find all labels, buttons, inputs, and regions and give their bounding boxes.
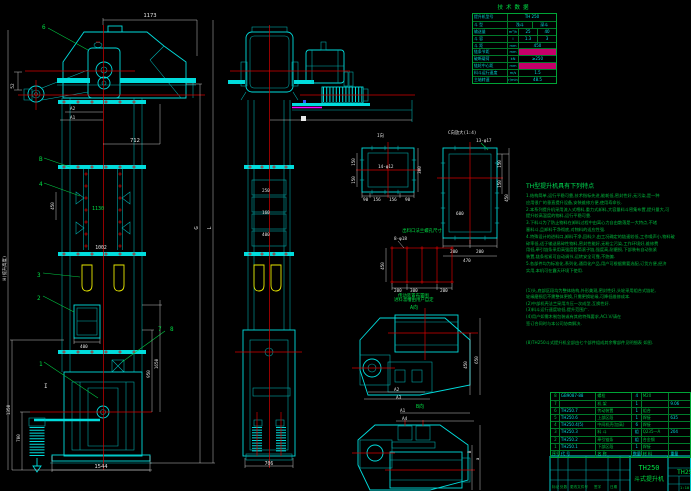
features-title: TH型提升机具有下列特点	[526, 181, 691, 190]
bom-material: M20	[641, 393, 669, 400]
dim-pulley: 52	[10, 83, 16, 89]
dim-casing-inner: 1002	[95, 245, 107, 251]
bom-weight	[668, 408, 690, 414]
bom-header-row: 序号代 号名 称数量材 料重量	[551, 450, 690, 457]
bom-row: 1TH250.1下部区段1焊接	[551, 443, 690, 450]
detail-flange-c	[437, 142, 509, 256]
tech-row-unit: l	[507, 36, 518, 42]
bom-code: TH250.3	[559, 429, 595, 435]
view-label-a1: A向	[410, 304, 418, 311]
dim-fc-b1: 200	[450, 249, 458, 255]
features-text-block: TH型提升机具有下列特点 1.结构简单,运行平稳可靠,技术指标先进,能耗低,密封…	[526, 181, 691, 391]
dim-dv2-a: a	[476, 457, 481, 460]
bom-row: 2TH250.2牵引链条组合金钢	[551, 436, 690, 443]
dim-fc-r3: 450	[504, 194, 510, 202]
tech-row-label: 输送量	[473, 29, 507, 35]
tech-row-label: 提升机型号	[473, 14, 507, 21]
balloon-6: 6	[42, 24, 46, 31]
bom-no: 2	[551, 437, 559, 443]
centerlines-front	[18, 25, 205, 470]
tech-row-value: 1.3	[518, 36, 537, 42]
bom-qty: 1	[631, 401, 641, 407]
parts-list-table: 8GB9087-88螺栓4M20 7机 架19.06 6TH250.7传动装置1…	[550, 392, 691, 458]
bom-header-material: 材 料	[641, 451, 669, 457]
bom-weight	[668, 444, 690, 450]
bom-weight	[668, 437, 690, 443]
features-body: 1.结构简单,运行平稳可靠,技术指标先进,能耗低,密封性好,无污染,是一种 应用…	[526, 193, 691, 275]
dim-len-g: G	[194, 226, 200, 229]
dim-dv1-r2: 650	[474, 356, 480, 364]
dim-a1: A1	[70, 115, 76, 121]
dim-len-l: L	[207, 226, 213, 230]
dim-base-width: 1544	[94, 464, 108, 470]
dim-link1: 250	[262, 188, 270, 194]
bom-row: 6TH250.7传动装置1组合	[551, 407, 690, 414]
dim-fi-b3: 156	[389, 197, 397, 203]
view-label-i: I向	[377, 132, 384, 139]
tech-row-unit: mm	[507, 49, 518, 55]
balloon-2: 2	[37, 295, 41, 302]
dim-fi-b4: 90	[405, 197, 411, 203]
tech-row-value: 48.5	[518, 77, 556, 83]
tech-row-label: 斗 型	[473, 22, 507, 28]
bom-row: 4TH250.4(5)中间机壳(加高)6焊接	[551, 421, 690, 428]
bom-name: 上部区段	[595, 415, 630, 421]
bom-name: 中间机壳(加高)	[595, 422, 630, 428]
bom-qty: 6	[631, 422, 641, 428]
bom-weight	[668, 393, 690, 400]
tech-row-value-redacted	[518, 63, 556, 69]
dim-dv1-a2: A2	[394, 387, 400, 393]
bolt-grid-title: 出料口法兰螺孔尺寸	[402, 227, 442, 234]
tech-row-label: 料斗运行速度	[473, 70, 507, 76]
dim-fi-b2: 156	[373, 197, 381, 203]
tech-row-unit: m³/h	[507, 29, 518, 35]
tech-table-title: 技术数据	[472, 4, 557, 13]
tech-row-label: 斗 容	[473, 36, 507, 42]
tech-row-unit: m/s	[507, 70, 518, 76]
dim-dv1-a3: A3	[396, 395, 402, 401]
dim-lines-front	[8, 18, 215, 472]
bom-no: 7	[551, 401, 559, 407]
tech-row-label: 链轮中心距	[473, 63, 507, 69]
bom-material: 焊接	[641, 444, 669, 450]
bom-qty: 1	[631, 408, 641, 414]
balloon-3: 3	[37, 272, 41, 279]
drive-top-view-2	[352, 413, 480, 490]
bom-code: TH250.7	[559, 408, 595, 414]
tech-row-label: 斗 距	[473, 43, 507, 49]
tech-row-value: 深斗	[532, 22, 557, 28]
dim-dv2-a4: A4	[402, 416, 408, 422]
balloon-leaders	[43, 28, 165, 398]
dim-fc-r2: 150	[497, 180, 503, 188]
bom-material: 合金钢	[641, 437, 669, 443]
bom-no: 8	[551, 393, 559, 400]
rev-doc: 更改文件号	[570, 484, 588, 489]
dim-link2: 160	[262, 210, 270, 216]
bom-code: TH250.6	[559, 415, 595, 421]
dim-a2: A2	[70, 106, 76, 112]
bom-material: Q235—A	[641, 429, 669, 435]
balloon-b: B	[39, 156, 43, 163]
bom-row: 8GB9087-88螺栓4M20	[551, 393, 690, 400]
flange-c-holes: 13-φ17	[476, 138, 492, 144]
balloon-8: 8	[170, 326, 174, 333]
bom-no: 4	[551, 422, 559, 428]
dim-fi-right: 300	[417, 166, 423, 174]
bom-weight	[668, 422, 690, 428]
bom-name: 下部区段	[595, 444, 630, 450]
bom-weight: 204	[668, 429, 690, 435]
bom-qty: 组	[631, 429, 641, 435]
dim-top-width: 1173	[143, 13, 156, 19]
dim-boot-h1: 950	[146, 370, 152, 378]
dim-fi-b1: 90	[363, 197, 369, 203]
dim-fc-b2: 200	[476, 249, 484, 255]
buckets-front	[82, 265, 124, 291]
tech-row-value: TH 250	[507, 14, 556, 21]
title-drawing-no: TH250	[677, 468, 691, 476]
dim-door: 400	[80, 344, 88, 350]
bom-no: 3	[551, 429, 559, 435]
bom-weight: 635	[668, 415, 690, 421]
tech-row-unit: r/min	[507, 77, 518, 83]
dim-height-label: H(提升高度)	[1, 256, 8, 281]
balloon-4: 4	[39, 181, 43, 188]
bom-header-qty: 数量	[631, 451, 641, 457]
tech-row-unit: mm	[507, 43, 518, 49]
side-view-elevator	[228, 25, 415, 468]
bom-header-no: 序号	[551, 451, 559, 457]
bom-code	[559, 401, 595, 407]
rev-mark: 标记	[552, 484, 560, 489]
title-model: TH250	[638, 464, 659, 472]
dim-fi-left1: 150	[351, 158, 357, 166]
bom-qty: 4	[631, 393, 641, 400]
tech-row-unit: mm	[507, 63, 518, 69]
dim-fi-left2: 150	[351, 176, 357, 184]
bom-header-weight: 重量	[668, 451, 690, 457]
dim-mid-pitch: 450	[50, 202, 56, 210]
title-product: 斗式提升机	[634, 475, 664, 483]
bom-material: 焊接	[641, 422, 669, 428]
bolt-grid-holes: 8-φ18	[394, 236, 407, 242]
tech-row-unit: kN	[507, 56, 518, 62]
bom-no: 5	[551, 415, 559, 421]
dim-boot-takeup: 700	[16, 434, 22, 442]
dim-dv2-b: B	[467, 450, 473, 453]
dim-grid-b3: 200	[440, 288, 448, 294]
dim-boot-side-width: 706	[265, 461, 274, 467]
bom-row: 5TH250.6上部区段1焊接635	[551, 414, 690, 421]
bom-no: 1	[551, 444, 559, 450]
bom-name: 传动装置	[595, 408, 630, 414]
tech-row-label: 破断载荷	[473, 56, 507, 62]
rev-sign: 签字	[594, 484, 602, 489]
tech-row-value: 450	[518, 43, 556, 49]
features-notes: (1)头,底部区段均为整体结构,外形美观,密封性好,头轮采用组合式链轮, 轮缘磨…	[526, 288, 691, 328]
detail-bolt-grid	[386, 241, 454, 290]
tech-table-grid: 提升机型号TH 250 斗 型浅斗深斗 输送量m³/h2540 斗 容l1.33…	[472, 13, 557, 84]
technical-data-table: 技术数据 提升机型号TH 250 斗 型浅斗深斗 输送量m³/h2540 斗 容…	[472, 4, 557, 84]
section-mark-i: I	[44, 383, 48, 390]
front-view-elevator	[8, 18, 215, 472]
dim-link3: 400	[262, 232, 270, 238]
dim-fc-inner: 600	[456, 211, 464, 217]
dim-dv1-r1: 450	[463, 361, 469, 369]
bom-qty: 组	[631, 437, 641, 443]
detail-flange-i	[356, 142, 420, 198]
tech-row-value: 1.5	[518, 70, 556, 76]
bom-no: 6	[551, 408, 559, 414]
tech-row-label: 链条节距	[473, 49, 507, 55]
bom-qty: 1	[631, 415, 641, 421]
dim-grid-left: 450	[380, 262, 386, 270]
bom-name: 料 斗	[595, 429, 630, 435]
balloon-1: 1	[39, 361, 43, 368]
balloon-7: 7	[158, 326, 162, 333]
tech-row-value: 3	[537, 36, 556, 42]
bom-code: GB9087-88	[559, 393, 595, 400]
tech-row-label: 主轴转速	[473, 77, 507, 83]
rev-count: 处数	[560, 484, 568, 489]
dim-casing-width: 1130	[92, 206, 104, 212]
dim-dv2-a1: A1	[400, 408, 406, 414]
tech-row-value: 40	[537, 29, 556, 35]
bom-header-code: 代 号	[559, 451, 595, 457]
view-label-c: C向放大(1:4)	[448, 129, 476, 136]
bom-row: 7机 架19.06	[551, 400, 690, 407]
drive-top-view-1	[352, 308, 480, 399]
bom-name: 螺栓	[595, 393, 630, 400]
bom-header-name: 名 称	[595, 451, 630, 457]
bom-code: TH250.1	[559, 444, 595, 450]
flange-i-holes: 14-φ12	[378, 164, 394, 170]
bom-name: 机 架	[595, 401, 630, 407]
tech-row-value: 浅斗	[507, 22, 532, 28]
bom-row: 3TH250.3料 斗组Q235—A204	[551, 428, 690, 435]
dim-boot-left: 1350	[6, 404, 12, 415]
bom-code: TH250.2	[559, 437, 595, 443]
bom-material: 组合	[641, 408, 669, 414]
bom-material: 焊接	[641, 415, 669, 421]
features-footnote: (8)TH250斗式提升机全部由七个部件组成其余零部件见明细表 如图.	[526, 340, 691, 346]
tech-row-value-redacted	[518, 49, 556, 55]
bom-material	[641, 401, 669, 407]
drive-layout-label: 传动装置布置图	[398, 292, 429, 299]
title-scale: 1:10	[680, 485, 690, 490]
rev-date: 日期	[610, 484, 618, 489]
tech-row-value: 25	[518, 29, 537, 35]
dim-fc-r1: 150	[497, 160, 503, 168]
centerlines-side	[230, 25, 415, 468]
dim-boot-h2: 1650	[154, 358, 160, 369]
bom-name: 牵引链条	[595, 437, 630, 443]
bom-code: TH250.4(5)	[559, 422, 595, 428]
bom-weight: 9.06	[668, 401, 690, 407]
tech-row-value: ≥250	[518, 56, 556, 62]
dim-head-offset: 712	[130, 138, 140, 144]
view-label-b: B向	[416, 403, 424, 410]
bom-qty: 1	[631, 444, 641, 450]
cad-drawing-canvas: { "tech_table": { "title": "技术数据", "rows…	[0, 0, 691, 491]
dim-fc-b3: 470	[463, 258, 471, 264]
